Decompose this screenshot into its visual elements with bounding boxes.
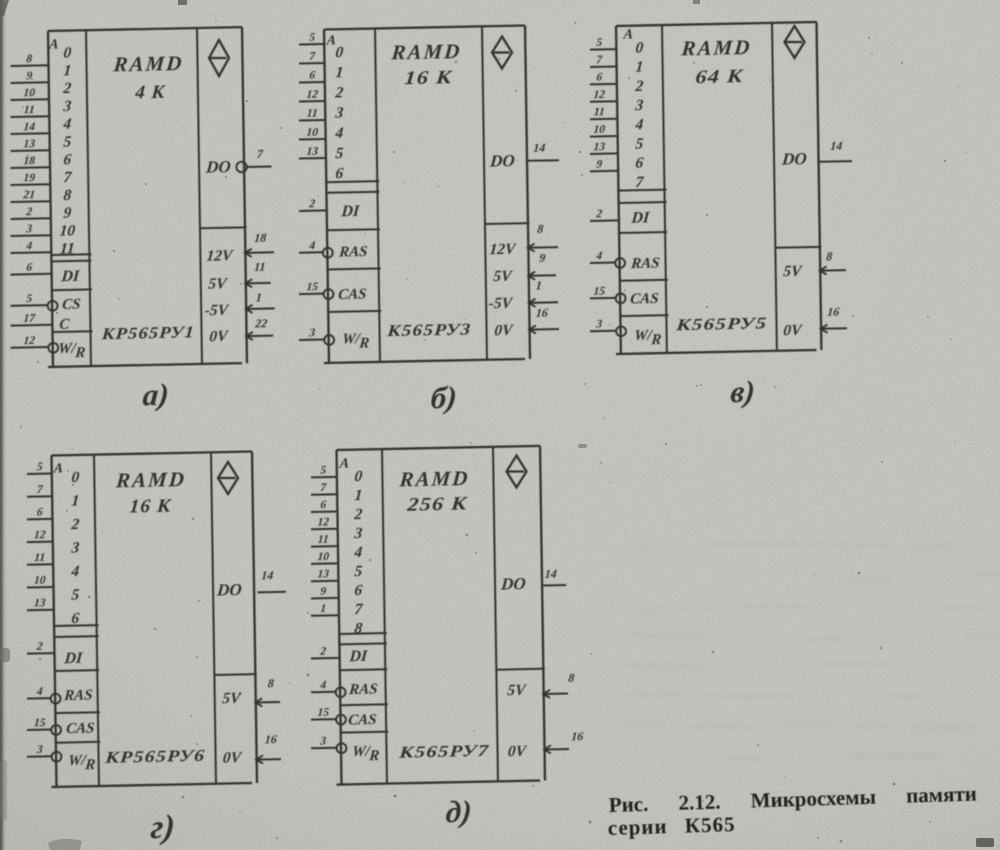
svg-text:15: 15	[34, 717, 47, 729]
svg-text:A: A	[325, 32, 337, 48]
svg-text:8: 8	[267, 676, 274, 690]
svg-text:3: 3	[308, 327, 316, 339]
svg-text:DO: DO	[499, 574, 526, 594]
svg-text:2: 2	[634, 78, 644, 95]
svg-text:16: 16	[535, 306, 549, 320]
svg-text:1: 1	[255, 290, 262, 304]
svg-text:2: 2	[70, 516, 80, 533]
svg-text:4: 4	[308, 240, 316, 252]
svg-text:14: 14	[533, 141, 546, 155]
svg-text:DI: DI	[63, 650, 84, 667]
svg-text:4: 4	[25, 240, 33, 252]
svg-text:11: 11	[23, 104, 35, 116]
svg-text:3: 3	[634, 97, 644, 114]
svg-text:1: 1	[535, 278, 542, 292]
svg-text:21: 21	[22, 189, 35, 201]
svg-text:14: 14	[23, 121, 36, 133]
svg-text:16: 16	[827, 305, 841, 319]
svg-text:1: 1	[71, 492, 80, 509]
svg-text:16 К: 16 К	[129, 496, 173, 518]
svg-text:18: 18	[254, 231, 267, 245]
svg-text:8: 8	[568, 671, 575, 685]
svg-text:10: 10	[306, 127, 319, 139]
svg-text:серии К565: серии К565	[607, 812, 735, 840]
svg-text:12V: 12V	[206, 247, 235, 265]
svg-text:3: 3	[353, 525, 363, 542]
svg-text:1: 1	[354, 487, 363, 504]
svg-text:16: 16	[264, 732, 278, 746]
svg-text:2: 2	[308, 198, 316, 210]
svg-text:14: 14	[830, 139, 843, 153]
svg-text:2: 2	[35, 641, 43, 653]
svg-text:RAS: RAS	[629, 256, 660, 273]
svg-text:22: 22	[254, 316, 268, 330]
svg-text:DO: DO	[780, 149, 807, 169]
svg-text:13: 13	[593, 141, 606, 153]
svg-text:5V: 5V	[507, 682, 528, 699]
svg-text:CAS: CAS	[337, 287, 367, 304]
svg-text:0V: 0V	[222, 749, 243, 766]
svg-text:11: 11	[254, 260, 266, 274]
svg-text:15: 15	[593, 285, 606, 297]
svg-text:4: 4	[319, 679, 327, 691]
svg-text:КР565РУ6: КР565РУ6	[103, 746, 206, 767]
svg-text:16 К: 16 К	[404, 67, 454, 89]
svg-text:RAS: RAS	[62, 688, 93, 705]
svg-text:A: A	[47, 36, 59, 52]
svg-text:4: 4	[62, 116, 72, 133]
svg-text:13: 13	[23, 138, 36, 150]
svg-text:4: 4	[353, 544, 363, 561]
svg-text:3: 3	[62, 98, 72, 115]
svg-text:2: 2	[334, 84, 344, 101]
svg-text:11: 11	[317, 534, 329, 546]
svg-text:DI: DI	[340, 203, 361, 220]
svg-text:3: 3	[595, 318, 603, 330]
svg-text:д): д)	[445, 794, 473, 830]
svg-text:а): а)	[142, 377, 171, 413]
svg-text:RAMD: RAMD	[112, 51, 185, 76]
svg-text:CAS: CAS	[630, 291, 660, 308]
svg-text:8: 8	[826, 249, 833, 263]
svg-text:4: 4	[334, 125, 344, 142]
svg-text:A: A	[338, 455, 350, 471]
svg-text:12V: 12V	[489, 241, 518, 259]
svg-text:RAMD: RAMD	[398, 466, 471, 491]
svg-text:10: 10	[34, 575, 47, 587]
svg-text:RAS: RAS	[347, 682, 378, 699]
svg-text:CAS: CAS	[347, 712, 377, 729]
svg-text:3: 3	[25, 223, 33, 235]
svg-text:г): г)	[149, 809, 176, 847]
svg-text:5V: 5V	[783, 263, 804, 280]
svg-text:14: 14	[544, 567, 557, 581]
svg-text:12: 12	[23, 335, 36, 347]
svg-text:12: 12	[593, 89, 606, 101]
svg-text:2: 2	[595, 208, 603, 220]
svg-text:5V: 5V	[493, 268, 514, 285]
svg-text:2: 2	[25, 206, 33, 218]
svg-text:12: 12	[34, 529, 47, 541]
svg-text:11: 11	[34, 552, 46, 564]
svg-text:КР565РУ1: КР565РУ1	[100, 322, 196, 343]
svg-text:5V: 5V	[208, 275, 229, 292]
svg-text:0V: 0V	[494, 322, 515, 339]
svg-text:3: 3	[35, 744, 43, 756]
svg-text:3: 3	[70, 539, 80, 556]
svg-text:8: 8	[537, 222, 544, 236]
svg-text:18: 18	[23, 155, 36, 167]
svg-text:10: 10	[59, 222, 76, 239]
svg-text:4: 4	[70, 563, 80, 580]
svg-text:RAMD: RAMD	[114, 467, 187, 492]
svg-text:4 К: 4 К	[134, 82, 167, 104]
svg-text:0V: 0V	[209, 328, 230, 345]
svg-text:19: 19	[23, 172, 36, 184]
svg-text:DI: DI	[348, 648, 369, 665]
svg-text:RAS: RAS	[337, 244, 368, 261]
svg-text:11: 11	[306, 108, 318, 120]
svg-text:10: 10	[23, 87, 36, 99]
svg-text:3: 3	[319, 735, 327, 747]
svg-text:RAMD: RAMD	[390, 39, 463, 64]
svg-text:256 К: 256 К	[405, 493, 468, 515]
svg-text:1: 1	[635, 59, 644, 76]
svg-text:К565РУ5: К565РУ5	[674, 313, 768, 334]
svg-text:3: 3	[334, 105, 344, 122]
svg-text:2: 2	[319, 646, 327, 658]
svg-text:12: 12	[306, 89, 319, 101]
svg-text:DO: DO	[488, 151, 515, 171]
svg-text:2: 2	[353, 506, 363, 523]
svg-text:RAMD: RAMD	[680, 35, 753, 60]
svg-text:-5V: -5V	[204, 302, 230, 320]
svg-text:10: 10	[317, 551, 330, 563]
svg-text:12: 12	[317, 516, 330, 528]
svg-text:64 К: 64 К	[695, 66, 745, 88]
svg-text:14: 14	[261, 568, 274, 582]
svg-text:К565РУ7: К565РУ7	[397, 741, 490, 762]
svg-text:10: 10	[593, 124, 606, 136]
svg-text:DI: DI	[630, 209, 651, 226]
svg-text:CS: CS	[61, 297, 81, 313]
svg-text:9: 9	[539, 251, 546, 265]
svg-text:A: A	[52, 460, 64, 476]
svg-text:CAS: CAS	[65, 721, 95, 738]
svg-text:4: 4	[35, 686, 43, 698]
svg-text:DO: DO	[204, 157, 231, 177]
svg-text:2: 2	[62, 80, 72, 97]
svg-text:15: 15	[306, 281, 319, 293]
svg-text:13: 13	[34, 597, 47, 609]
svg-text:1: 1	[320, 603, 327, 615]
svg-text:4: 4	[634, 116, 644, 133]
svg-text:13: 13	[317, 568, 330, 580]
svg-text:15: 15	[317, 707, 330, 719]
svg-text:DO: DO	[215, 580, 242, 600]
svg-text:13: 13	[306, 146, 319, 158]
svg-text:0V: 0V	[507, 743, 528, 760]
svg-text:5V: 5V	[222, 690, 243, 707]
svg-text:16: 16	[571, 729, 585, 743]
svg-text:A: A	[622, 26, 634, 42]
svg-text:К565РУ3: К565РУ3	[385, 319, 472, 340]
svg-text:1: 1	[335, 64, 344, 81]
svg-text:11: 11	[593, 106, 605, 118]
svg-text:0V: 0V	[783, 322, 804, 339]
svg-text:-5V: -5V	[488, 295, 514, 313]
svg-text:б): б)	[430, 380, 459, 416]
svg-text:1: 1	[63, 62, 72, 79]
svg-text:в): в)	[729, 374, 756, 410]
svg-text:DI: DI	[60, 268, 81, 285]
svg-text:4: 4	[595, 250, 603, 262]
